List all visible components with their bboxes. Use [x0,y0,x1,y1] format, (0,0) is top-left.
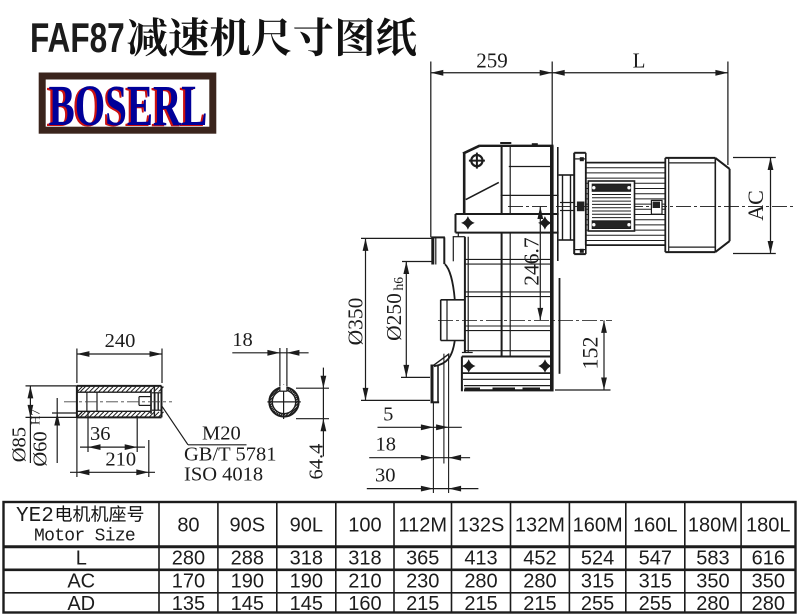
svg-text:L: L [76,548,87,570]
svg-text:AD: AD [67,593,95,614]
svg-text:210: 210 [105,449,136,471]
svg-text:230: 230 [406,571,439,593]
svg-text:280: 280 [523,571,556,593]
svg-text:BOSERL: BOSERL [49,73,208,137]
svg-text:160L: 160L [633,515,678,537]
svg-text:100: 100 [348,515,381,537]
svg-text:170: 170 [172,571,205,593]
svg-text:112M: 112M [398,515,447,537]
svg-text:190: 190 [290,571,323,593]
svg-text:288: 288 [231,548,264,570]
svg-text:524: 524 [581,548,614,570]
svg-text:M20: M20 [202,423,241,445]
svg-text:190: 190 [231,571,264,593]
svg-text:240: 240 [105,330,136,352]
svg-text:547: 547 [639,548,672,570]
svg-text:L: L [633,49,646,73]
svg-text:36: 36 [90,423,111,445]
svg-text:280: 280 [172,548,205,570]
svg-text:Ø250: Ø250 [382,293,406,341]
svg-text:H7: H7 [28,409,43,425]
svg-text:AC: AC [67,571,95,593]
svg-text:18: 18 [232,329,253,351]
svg-text:5: 5 [383,403,393,425]
svg-text:452: 452 [523,548,556,570]
svg-text:ISO 4018: ISO 4018 [184,464,263,486]
svg-text:180M: 180M [688,515,738,537]
svg-text:AC: AC [743,190,768,221]
svg-text:255: 255 [581,593,614,614]
svg-text:Ø60: Ø60 [30,431,52,466]
svg-text:280: 280 [752,593,785,614]
svg-text:FAF87: FAF87 [30,14,125,61]
svg-text:30: 30 [375,465,396,487]
svg-text:318: 318 [348,548,381,570]
svg-text:616: 616 [752,548,785,570]
svg-text:315: 315 [639,571,672,593]
svg-text:90L: 90L [290,515,323,537]
svg-text:413: 413 [464,548,497,570]
svg-text:152: 152 [578,337,603,370]
svg-text:318: 318 [290,548,323,570]
svg-text:160: 160 [348,593,381,614]
svg-text:80: 80 [177,515,199,537]
svg-text:h6: h6 [391,277,406,291]
svg-text:215: 215 [464,593,497,614]
svg-text:GB/T 5781: GB/T 5781 [184,444,276,466]
svg-text:210: 210 [348,571,381,593]
svg-text:Ø85: Ø85 [9,427,31,462]
svg-text:255: 255 [639,593,672,614]
svg-text:135: 135 [172,593,205,614]
svg-text:215: 215 [406,593,439,614]
svg-text:246.7: 246.7 [520,237,544,286]
svg-text:132M: 132M [515,515,565,537]
svg-text:583: 583 [696,548,729,570]
svg-text:145: 145 [231,593,264,614]
svg-text:132S: 132S [458,515,505,537]
svg-text:350: 350 [696,571,729,593]
svg-text:64.4: 64.4 [306,444,328,480]
svg-text:350: 350 [752,571,785,593]
svg-text:160M: 160M [573,515,623,537]
svg-text:18: 18 [376,433,397,455]
svg-text:215: 215 [523,593,556,614]
svg-text:90S: 90S [230,515,266,537]
svg-text:259: 259 [476,49,508,73]
svg-text:365: 365 [406,548,439,570]
svg-text:Motor Size: Motor Size [34,527,135,547]
svg-text:145: 145 [290,593,323,614]
svg-text:180L: 180L [746,515,791,537]
svg-text:YE2: YE2 [16,505,54,528]
svg-text:Ø350: Ø350 [344,298,368,346]
svg-text:315: 315 [581,571,614,593]
svg-text:280: 280 [696,593,729,614]
svg-text:280: 280 [464,571,497,593]
